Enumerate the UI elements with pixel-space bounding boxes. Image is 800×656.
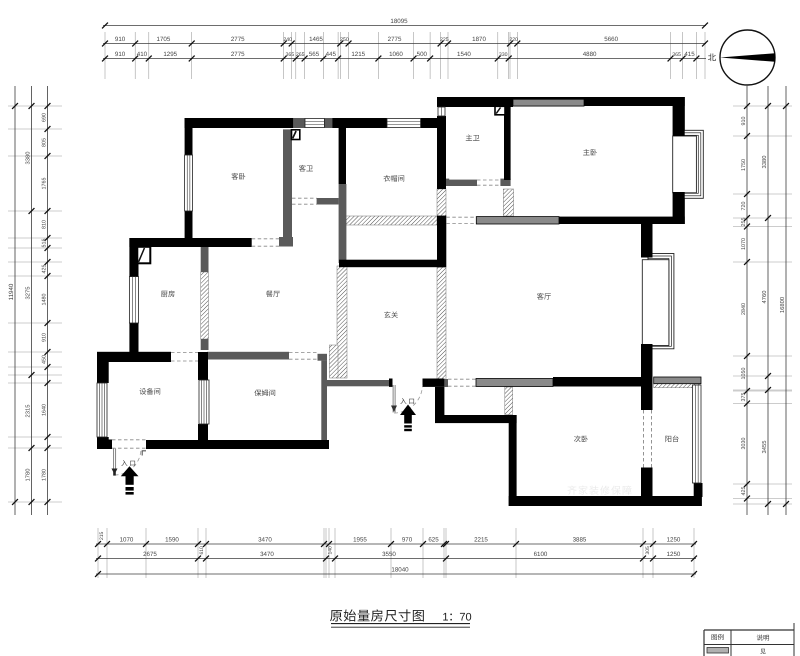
svg-text:齐家装修保障: 齐家装修保障 xyxy=(567,485,633,497)
svg-text:220: 220 xyxy=(509,37,518,43)
svg-text:910: 910 xyxy=(741,117,747,126)
svg-text:玄关: 玄关 xyxy=(384,311,398,320)
svg-text:次卧: 次卧 xyxy=(574,435,588,444)
svg-text:原始量房尺寸图: 原始量房尺寸图 xyxy=(330,609,426,624)
svg-text:215: 215 xyxy=(99,531,105,540)
svg-text:415: 415 xyxy=(684,51,695,58)
svg-text:265: 265 xyxy=(296,52,305,58)
svg-text:主卫: 主卫 xyxy=(465,134,479,143)
svg-text:5660: 5660 xyxy=(604,36,618,43)
svg-text:2775: 2775 xyxy=(388,36,402,43)
svg-text:厨房: 厨房 xyxy=(161,290,175,299)
svg-text:225: 225 xyxy=(440,37,449,43)
svg-text:240: 240 xyxy=(283,37,292,43)
svg-text:625: 625 xyxy=(428,537,439,544)
svg-text:1295: 1295 xyxy=(163,51,177,58)
svg-text:1780: 1780 xyxy=(25,469,32,482)
svg-text:18095: 18095 xyxy=(390,18,408,25)
svg-text:3455: 3455 xyxy=(761,441,768,454)
svg-text:2775: 2775 xyxy=(231,36,245,43)
svg-text:2215: 2215 xyxy=(474,537,488,544)
svg-text:阳台: 阳台 xyxy=(665,435,679,444)
svg-text:425: 425 xyxy=(42,265,48,274)
svg-text:3885: 3885 xyxy=(573,537,587,544)
svg-text:北: 北 xyxy=(708,53,717,63)
svg-text:入 口: 入 口 xyxy=(400,398,415,406)
svg-text:客卫: 客卫 xyxy=(299,164,313,173)
svg-text:2675: 2675 xyxy=(143,551,157,558)
svg-text:1480: 1480 xyxy=(42,294,48,306)
svg-text:805: 805 xyxy=(42,138,48,147)
svg-text:1060: 1060 xyxy=(389,51,403,58)
svg-text:910: 910 xyxy=(42,333,48,342)
svg-text:1705: 1705 xyxy=(157,36,171,43)
svg-text:720: 720 xyxy=(741,202,747,211)
svg-text:330: 330 xyxy=(499,52,508,58)
svg-text:衣帽间: 衣帽间 xyxy=(383,174,405,183)
svg-text:1750: 1750 xyxy=(741,159,747,171)
svg-text:1765: 1765 xyxy=(42,178,48,190)
svg-text:6100: 6100 xyxy=(534,551,548,558)
svg-text:305: 305 xyxy=(645,546,651,555)
svg-text:1070: 1070 xyxy=(120,537,134,544)
svg-text:入 口: 入 口 xyxy=(121,460,136,468)
svg-text:610: 610 xyxy=(199,546,205,555)
svg-text:140: 140 xyxy=(328,546,334,555)
svg-text:3380: 3380 xyxy=(761,156,768,169)
svg-text:1465: 1465 xyxy=(309,36,323,43)
svg-text:375: 375 xyxy=(741,393,747,402)
svg-text:1250: 1250 xyxy=(667,551,681,558)
svg-text:365: 365 xyxy=(285,52,294,58)
svg-text:图例: 图例 xyxy=(711,634,724,642)
svg-text:970: 970 xyxy=(402,537,413,544)
svg-text:255: 255 xyxy=(741,218,747,227)
svg-text:445: 445 xyxy=(326,51,337,58)
svg-text:690: 690 xyxy=(42,113,48,122)
svg-text:2840: 2840 xyxy=(741,303,747,315)
svg-text:910: 910 xyxy=(115,36,126,43)
svg-text:565: 565 xyxy=(309,51,320,58)
svg-text:425: 425 xyxy=(741,487,747,496)
svg-text:910: 910 xyxy=(115,51,126,58)
svg-text:11940: 11940 xyxy=(8,283,15,300)
svg-text:3550: 3550 xyxy=(382,551,396,558)
svg-text:16800: 16800 xyxy=(779,297,786,313)
svg-text:1780: 1780 xyxy=(42,469,48,481)
svg-text:2775: 2775 xyxy=(231,51,245,58)
svg-text:1050: 1050 xyxy=(741,368,747,380)
svg-text:1250: 1250 xyxy=(667,537,681,544)
svg-text:410: 410 xyxy=(137,51,148,58)
svg-text:500: 500 xyxy=(417,51,428,58)
svg-text:说明: 说明 xyxy=(757,634,771,642)
svg-text:515: 515 xyxy=(42,239,48,248)
svg-text:客卧: 客卧 xyxy=(231,172,245,181)
svg-text:1955: 1955 xyxy=(353,537,367,544)
svg-text:1870: 1870 xyxy=(472,36,486,43)
svg-text:2315: 2315 xyxy=(25,405,32,418)
svg-text:1590: 1590 xyxy=(165,537,179,544)
svg-text:3275: 3275 xyxy=(25,287,32,300)
svg-text:810: 810 xyxy=(42,220,48,229)
svg-text:3380: 3380 xyxy=(25,152,32,165)
svg-text:1540: 1540 xyxy=(457,51,471,58)
svg-text:1：70: 1：70 xyxy=(442,612,471,624)
svg-text:餐厅: 餐厅 xyxy=(266,290,280,299)
svg-text:3470: 3470 xyxy=(260,551,274,558)
svg-text:4880: 4880 xyxy=(583,51,597,58)
svg-text:3030: 3030 xyxy=(741,438,747,450)
svg-text:设备间: 设备间 xyxy=(139,387,161,396)
svg-text:主卧: 主卧 xyxy=(583,148,597,157)
svg-text:18040: 18040 xyxy=(391,567,409,574)
svg-text:1070: 1070 xyxy=(741,238,747,250)
svg-text:365: 365 xyxy=(672,52,681,58)
svg-text:250: 250 xyxy=(340,37,349,43)
svg-text:1215: 1215 xyxy=(351,51,365,58)
svg-text:450: 450 xyxy=(42,355,48,364)
svg-text:见: 见 xyxy=(760,649,766,656)
svg-text:保姆间: 保姆间 xyxy=(254,389,276,398)
svg-text:3470: 3470 xyxy=(258,537,272,544)
svg-text:1640: 1640 xyxy=(42,404,48,416)
svg-text:4760: 4760 xyxy=(761,291,768,304)
svg-text:客厅: 客厅 xyxy=(537,292,551,301)
